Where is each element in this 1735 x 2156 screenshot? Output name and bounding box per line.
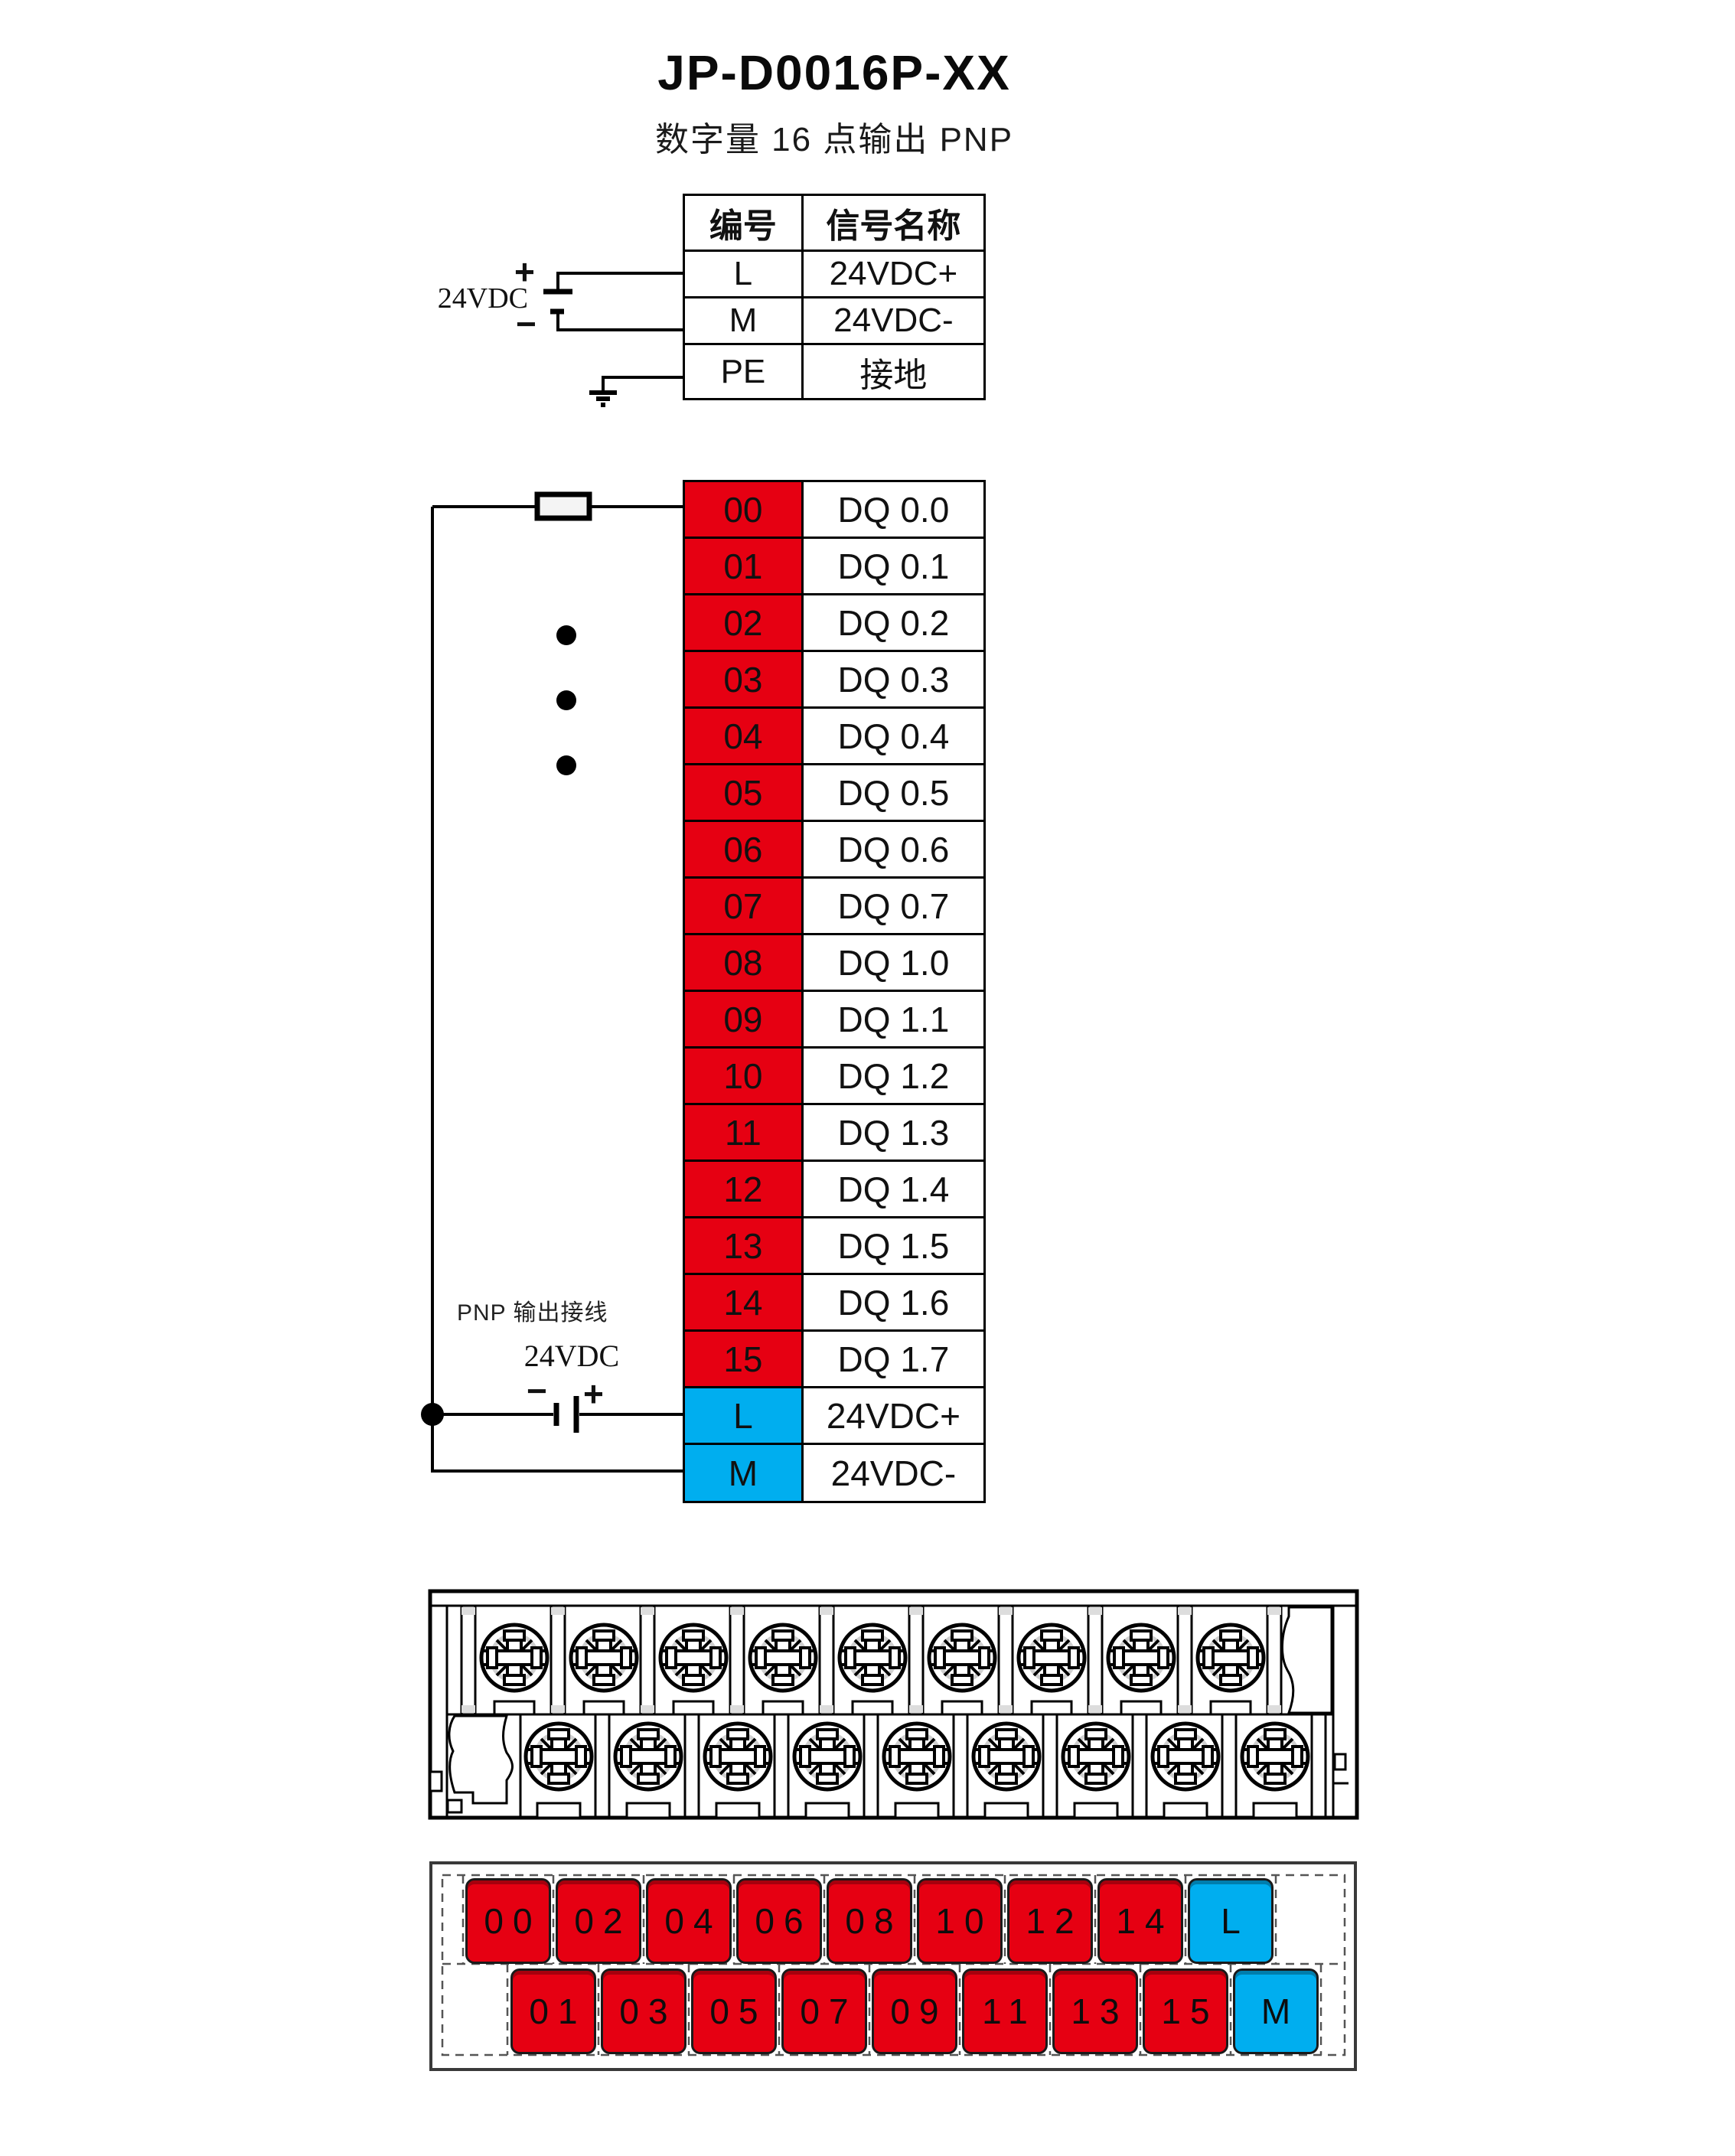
terminal-no: 10	[685, 1049, 804, 1103]
terminal-no: 07	[685, 879, 804, 933]
io-terminal-table: 00DQ 0.0 01DQ 0.1 02DQ 0.2 03DQ 0.3 04DQ…	[683, 480, 986, 1503]
terminal-no: M	[685, 298, 804, 343]
ground-icon	[589, 393, 617, 405]
signal-name: 24VDC+	[804, 1388, 983, 1443]
signal-name: DQ 0.3	[804, 652, 983, 706]
terminal-no: L	[685, 252, 804, 296]
plus-sign: +	[583, 1373, 604, 1414]
signal-name: DQ 1.5	[804, 1218, 983, 1273]
signal-name: DQ 0.4	[804, 709, 983, 763]
signal-name: DQ 1.4	[804, 1162, 983, 1216]
page-subtitle: 数字量 16 点输出 PNP	[0, 112, 1668, 161]
table-row: 03DQ 0.3	[685, 652, 983, 709]
signal-name: DQ 1.0	[804, 935, 983, 990]
terminal-layout-panel	[429, 1861, 1357, 2071]
pnp-wiring-label: PNP 输出接线	[457, 1293, 608, 1327]
signal-name: DQ 1.3	[804, 1105, 983, 1160]
signal-name: DQ 0.6	[804, 822, 983, 876]
terminal-no: 09	[685, 992, 804, 1046]
table-row: 02DQ 0.2	[685, 595, 983, 652]
signal-name: DQ 1.6	[804, 1275, 983, 1329]
terminal-no: L	[685, 1388, 804, 1443]
wire-pe	[603, 377, 683, 391]
terminal-no: 03	[685, 652, 804, 706]
terminal-no: 11	[685, 1105, 804, 1160]
terminal-no: 15	[685, 1332, 804, 1386]
table-row: 14DQ 1.6	[685, 1275, 983, 1332]
terminal-no: 06	[685, 822, 804, 876]
signal-name: DQ 0.0	[804, 482, 983, 537]
terminal-no: 00	[685, 482, 804, 537]
header-signal-name: 信号名称	[804, 196, 983, 250]
plus-sign: +	[514, 251, 535, 292]
table-row: M 24VDC-	[685, 298, 983, 345]
table-row: 00DQ 0.0	[685, 482, 983, 539]
terminal-no: 05	[685, 765, 804, 820]
minus-sign: −	[516, 303, 536, 344]
left-end-piece	[449, 1716, 513, 1803]
wire-plus-to-L	[558, 273, 683, 289]
wire-minus-to-M	[558, 314, 683, 330]
right-end-piece	[1282, 1607, 1332, 1713]
table-row: 12DQ 1.4	[685, 1162, 983, 1218]
signal-name: DQ 1.1	[804, 992, 983, 1046]
table-row: PE 接地	[685, 345, 983, 398]
table-row: L24VDC+	[685, 1388, 983, 1445]
terminal-no: 14	[685, 1275, 804, 1329]
table-row: L 24VDC+	[685, 252, 983, 298]
terminal-no: 04	[685, 709, 804, 763]
screw-terminals-top	[481, 1625, 1264, 1691]
terminal-no: 01	[685, 539, 804, 593]
terminal-no: 12	[685, 1162, 804, 1216]
signal-name: 接地	[804, 345, 983, 398]
top-supply-circuit	[543, 273, 683, 405]
signal-name: 24VDC+	[804, 252, 983, 296]
table-row: 05DQ 0.5	[685, 765, 983, 822]
table-row: M24VDC-	[685, 1445, 983, 1501]
signal-name: 24VDC-	[804, 1445, 983, 1501]
minus-sign: −	[527, 1370, 547, 1411]
terminal-block-drawing	[430, 1591, 1357, 1818]
terminal-no: 13	[685, 1218, 804, 1273]
table-row: 04DQ 0.4	[685, 709, 983, 765]
supply-voltage-label: 24VDC	[413, 282, 528, 315]
signal-name: DQ 0.2	[804, 595, 983, 650]
page-title: JP-D0016P-XX	[0, 44, 1668, 101]
terminal-no: PE	[685, 345, 804, 398]
page-header: JP-D0016P-XX 数字量 16 点输出 PNP	[0, 44, 1668, 161]
top-row-tabs	[494, 1701, 1251, 1714]
terminal-no: M	[685, 1445, 804, 1501]
signal-name: DQ 0.5	[804, 765, 983, 820]
table-row: 06DQ 0.6	[685, 822, 983, 879]
header-terminal-no: 编号	[685, 196, 804, 250]
table-row: 13DQ 1.5	[685, 1218, 983, 1275]
table-header-row: 编号 信号名称	[685, 196, 983, 252]
bottom-row-tabs	[537, 1803, 1296, 1818]
supply-voltage-label: 24VDC	[514, 1338, 629, 1374]
battery-icon	[543, 292, 572, 311]
signal-name: DQ 1.7	[804, 1332, 983, 1386]
terminal-no: 08	[685, 935, 804, 990]
power-terminal-table: 编号 信号名称 L 24VDC+ M 24VDC- PE 接地	[683, 194, 986, 400]
signal-name: 24VDC-	[804, 298, 983, 343]
table-row: 10DQ 1.2	[685, 1049, 983, 1105]
table-row: 15DQ 1.7	[685, 1332, 983, 1388]
battery-icon	[556, 1396, 576, 1433]
signal-name: DQ 0.1	[804, 539, 983, 593]
table-row: 09DQ 1.1	[685, 992, 983, 1049]
signal-name: DQ 1.2	[804, 1049, 983, 1103]
ellipsis-dots-icon	[556, 625, 576, 775]
table-row: 07DQ 0.7	[685, 879, 983, 935]
load-resistor-icon	[537, 494, 589, 518]
screw-terminals-bottom	[526, 1724, 1308, 1789]
terminal-no: 02	[685, 595, 804, 650]
table-row: 11DQ 1.3	[685, 1105, 983, 1162]
table-row: 08DQ 1.0	[685, 935, 983, 992]
table-row: 01DQ 0.1	[685, 539, 983, 595]
signal-name: DQ 0.7	[804, 879, 983, 933]
